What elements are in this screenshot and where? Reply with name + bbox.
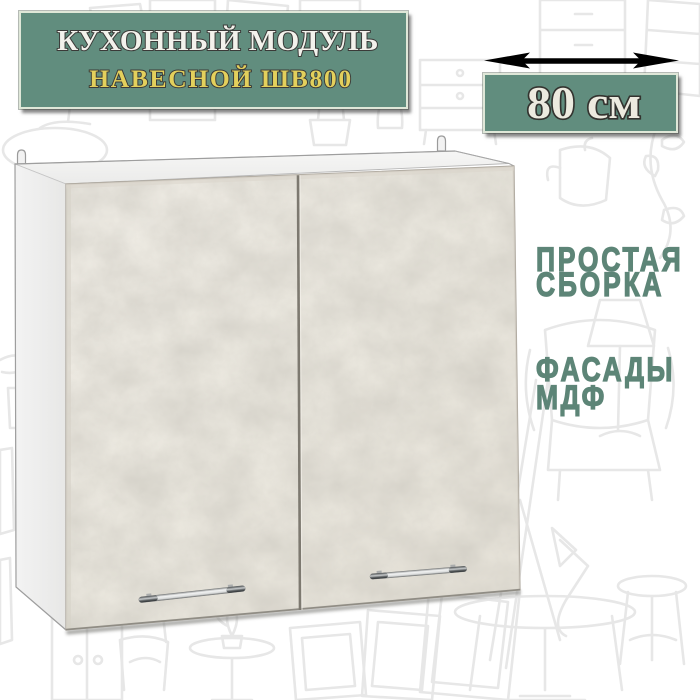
svg-text:80 см: 80 см <box>527 77 641 128</box>
svg-text:КУХОННЫЙ МОДУЛЬ: КУХОННЫЙ МОДУЛЬ <box>57 24 379 57</box>
svg-text:НАВЕСНОЙ ШВ800: НАВЕСНОЙ ШВ800 <box>89 64 353 93</box>
